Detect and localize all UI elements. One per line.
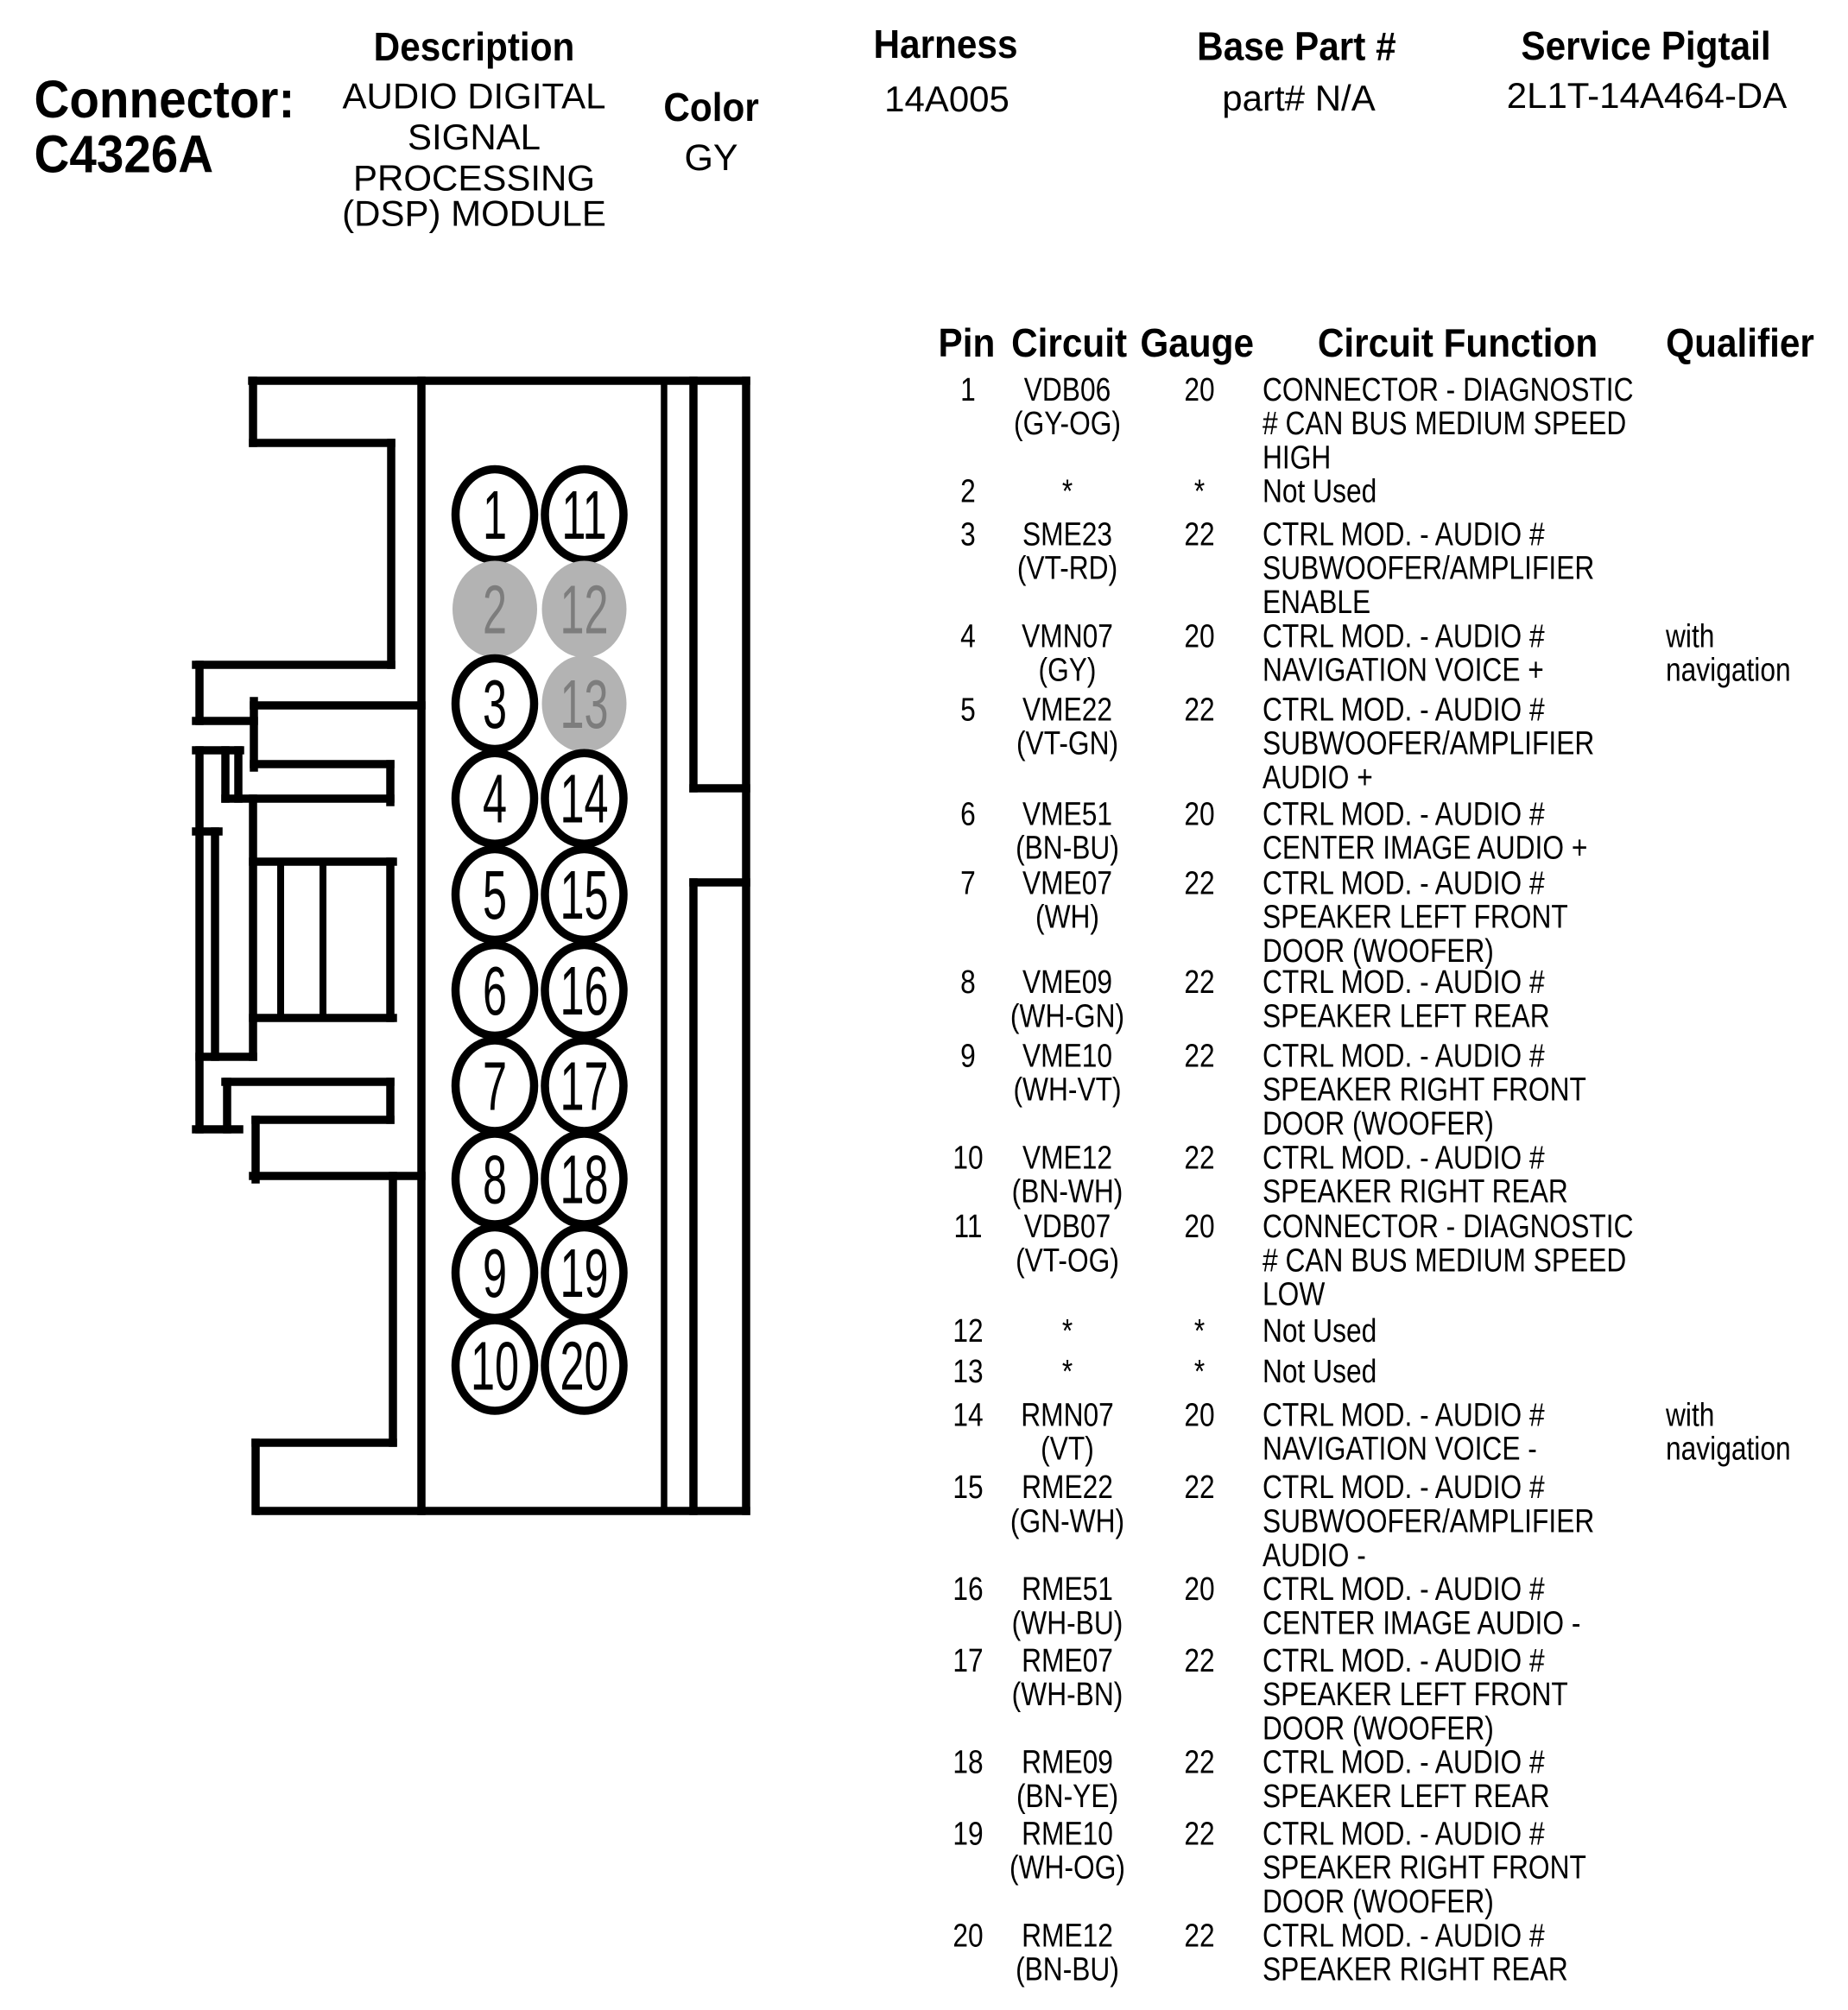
svg-text:22: 22 (1184, 516, 1214, 553)
svg-text:CENTER IMAGE AUDIO -: CENTER IMAGE AUDIO - (1263, 1605, 1580, 1641)
svg-text:8: 8 (960, 964, 976, 1000)
svg-text:22: 22 (1184, 1642, 1214, 1678)
svg-text:22: 22 (1184, 1918, 1214, 1954)
svg-text:22: 22 (1184, 1140, 1214, 1176)
svg-text:with: with (1665, 1397, 1714, 1433)
svg-text:Not Used: Not Used (1263, 1354, 1377, 1390)
svg-text:part# N/A: part# N/A (1222, 78, 1375, 118)
svg-text:RME10: RME10 (1022, 1816, 1113, 1852)
svg-text:PROCESSING: PROCESSING (353, 157, 595, 198)
svg-text:VME09: VME09 (1022, 964, 1112, 1000)
svg-text:9: 9 (483, 1235, 507, 1312)
svg-text:3: 3 (483, 666, 507, 743)
svg-text:CTRL MOD. - AUDIO #: CTRL MOD. - AUDIO # (1263, 1744, 1545, 1780)
svg-text:*: * (1062, 1312, 1073, 1349)
svg-text:(VT-GN): (VT-GN) (1016, 725, 1118, 762)
svg-text:10: 10 (952, 1140, 983, 1176)
svg-text:SPEAKER RIGHT FRONT: SPEAKER RIGHT FRONT (1263, 1849, 1586, 1886)
svg-text:CTRL MOD. - AUDIO #: CTRL MOD. - AUDIO # (1263, 1642, 1545, 1678)
svg-text:19: 19 (952, 1816, 983, 1852)
svg-text:CONNECTOR - DIAGNOSTIC: CONNECTOR - DIAGNOSTIC (1263, 1208, 1633, 1244)
svg-text:CTRL MOD. - AUDIO #: CTRL MOD. - AUDIO # (1263, 1470, 1545, 1506)
svg-text:22: 22 (1184, 865, 1214, 901)
svg-text:CTRL MOD. - AUDIO #: CTRL MOD. - AUDIO # (1263, 1140, 1545, 1176)
svg-text:VME07: VME07 (1022, 865, 1112, 901)
svg-text:SPEAKER LEFT FRONT: SPEAKER LEFT FRONT (1263, 899, 1568, 935)
svg-text:CTRL MOD. - AUDIO #: CTRL MOD. - AUDIO # (1263, 1397, 1545, 1433)
svg-text:2L1T-14A464-DA: 2L1T-14A464-DA (1507, 75, 1788, 116)
svg-text:VMN07: VMN07 (1022, 618, 1113, 654)
svg-text:Circuit: Circuit (1011, 321, 1127, 365)
svg-text:SUBWOOFER/AMPLIFIER: SUBWOOFER/AMPLIFIER (1263, 550, 1594, 586)
svg-text:22: 22 (1184, 1744, 1214, 1780)
svg-text:8: 8 (483, 1141, 507, 1219)
svg-text:20: 20 (1184, 371, 1214, 408)
svg-text:(VT-OG): (VT-OG) (1016, 1242, 1119, 1279)
svg-text:Description: Description (374, 25, 575, 69)
svg-text:CTRL MOD. - AUDIO #: CTRL MOD. - AUDIO # (1263, 618, 1545, 654)
svg-text:CTRL MOD. - AUDIO #: CTRL MOD. - AUDIO # (1263, 516, 1545, 553)
svg-text:22: 22 (1184, 1816, 1214, 1852)
svg-text:16: 16 (952, 1571, 983, 1608)
svg-text:SPEAKER RIGHT FRONT: SPEAKER RIGHT FRONT (1263, 1071, 1586, 1108)
svg-text:Color: Color (663, 86, 758, 130)
svg-text:20: 20 (952, 1918, 983, 1954)
svg-text:SPEAKER LEFT FRONT: SPEAKER LEFT FRONT (1263, 1676, 1568, 1712)
svg-text:NAVIGATION VOICE +: NAVIGATION VOICE + (1263, 652, 1544, 688)
svg-text:11: 11 (561, 477, 606, 554)
svg-text:(GY-OG): (GY-OG) (1014, 405, 1121, 441)
svg-text:17: 17 (952, 1642, 983, 1678)
svg-text:14A005: 14A005 (884, 79, 1009, 119)
svg-text:CTRL MOD. - AUDIO #: CTRL MOD. - AUDIO # (1263, 964, 1545, 1000)
svg-text:AUDIO -: AUDIO - (1263, 1537, 1366, 1573)
svg-text:17: 17 (560, 1048, 608, 1126)
svg-text:Not Used: Not Used (1263, 473, 1377, 509)
svg-text:DOOR (WOOFER): DOOR (WOOFER) (1263, 1883, 1494, 1919)
svg-text:SUBWOOFER/AMPLIFIER: SUBWOOFER/AMPLIFIER (1263, 1503, 1594, 1539)
svg-text:navigation: navigation (1666, 652, 1791, 688)
svg-text:Qualifier: Qualifier (1666, 321, 1814, 365)
svg-text:(VT-RD): (VT-RD) (1017, 550, 1117, 586)
svg-text:VME12: VME12 (1022, 1140, 1112, 1176)
svg-text:CTRL MOD. - AUDIO #: CTRL MOD. - AUDIO # (1263, 1918, 1545, 1954)
svg-text:9: 9 (960, 1038, 976, 1074)
svg-text:# CAN BUS MEDIUM SPEED: # CAN BUS MEDIUM SPEED (1263, 1242, 1626, 1279)
svg-text:VME22: VME22 (1022, 692, 1112, 728)
svg-text:Connector:: Connector: (35, 71, 295, 129)
svg-text:(GN-WH): (GN-WH) (1010, 1503, 1124, 1539)
svg-text:20: 20 (560, 1328, 608, 1406)
svg-text:15: 15 (560, 856, 608, 934)
svg-text:Circuit Function: Circuit Function (1318, 321, 1598, 365)
svg-text:CTRL MOD. - AUDIO #: CTRL MOD. - AUDIO # (1263, 865, 1545, 901)
svg-text:20: 20 (1184, 1571, 1214, 1608)
svg-text:# CAN BUS MEDIUM SPEED: # CAN BUS MEDIUM SPEED (1263, 405, 1626, 441)
svg-text:19: 19 (560, 1235, 608, 1312)
svg-text:*: * (1062, 473, 1073, 509)
svg-text:Gauge: Gauge (1140, 321, 1254, 365)
svg-text:(WH-GN): (WH-GN) (1010, 998, 1124, 1034)
svg-text:with: with (1665, 618, 1714, 654)
svg-text:7: 7 (960, 865, 976, 901)
svg-text:14: 14 (952, 1397, 983, 1433)
svg-text:12: 12 (560, 572, 608, 649)
svg-text:22: 22 (1184, 1038, 1214, 1074)
svg-text:SIGNAL: SIGNAL (408, 117, 541, 157)
svg-text:Pin: Pin (938, 321, 995, 365)
svg-text:*: * (1194, 473, 1206, 509)
svg-text:VME51: VME51 (1022, 796, 1112, 832)
svg-text:SPEAKER RIGHT REAR: SPEAKER RIGHT REAR (1263, 1951, 1568, 1988)
svg-text:(WH): (WH) (1035, 899, 1099, 935)
svg-text:RME09: RME09 (1022, 1744, 1113, 1780)
svg-text:22: 22 (1184, 1470, 1214, 1506)
svg-text:4: 4 (483, 761, 507, 838)
svg-text:20: 20 (1184, 1208, 1214, 1244)
svg-text:20: 20 (1184, 618, 1214, 654)
svg-text:(BN-YE): (BN-YE) (1016, 1778, 1118, 1814)
svg-text:22: 22 (1184, 692, 1214, 728)
svg-text:(BN-BU): (BN-BU) (1016, 1951, 1119, 1988)
svg-text:RMN07: RMN07 (1021, 1397, 1114, 1433)
svg-text:6: 6 (483, 952, 507, 1030)
svg-text:(WH-BU): (WH-BU) (1012, 1605, 1123, 1641)
svg-text:2: 2 (483, 572, 507, 649)
svg-text:VME10: VME10 (1022, 1038, 1112, 1074)
svg-text:CTRL MOD. - AUDIO #: CTRL MOD. - AUDIO # (1263, 1571, 1545, 1608)
svg-text:(WH-VT): (WH-VT) (1013, 1071, 1121, 1108)
svg-text:*: * (1062, 1354, 1073, 1390)
svg-text:Service Pigtail: Service Pigtail (1521, 24, 1770, 68)
svg-text:Base Part #: Base Part # (1197, 25, 1396, 69)
svg-text:NAVIGATION VOICE -: NAVIGATION VOICE - (1263, 1431, 1537, 1467)
svg-text:SPEAKER LEFT REAR: SPEAKER LEFT REAR (1263, 998, 1550, 1034)
svg-text:3: 3 (960, 516, 976, 553)
svg-text:LOW: LOW (1263, 1276, 1325, 1312)
svg-text:RME22: RME22 (1022, 1470, 1113, 1506)
svg-text:(DSP) MODULE: (DSP) MODULE (342, 193, 606, 234)
svg-text:HIGH: HIGH (1263, 439, 1331, 476)
svg-text:ENABLE: ENABLE (1263, 584, 1370, 620)
svg-text:*: * (1194, 1354, 1206, 1390)
svg-text:(WH-BN): (WH-BN) (1012, 1676, 1123, 1712)
svg-text:VDB07: VDB07 (1024, 1208, 1111, 1244)
svg-text:7: 7 (483, 1048, 507, 1126)
svg-text:5: 5 (960, 692, 976, 728)
svg-text:SPEAKER RIGHT REAR: SPEAKER RIGHT REAR (1263, 1173, 1568, 1210)
svg-text:(GY): (GY) (1039, 652, 1097, 688)
svg-text:(VT): (VT) (1041, 1431, 1094, 1467)
svg-text:SME23: SME23 (1022, 516, 1112, 553)
svg-text:CTRL MOD. - AUDIO #: CTRL MOD. - AUDIO # (1263, 1038, 1545, 1074)
svg-text:18: 18 (560, 1141, 608, 1219)
svg-text:10: 10 (471, 1328, 519, 1406)
svg-text:CTRL MOD. - AUDIO #: CTRL MOD. - AUDIO # (1263, 692, 1545, 728)
svg-text:C4326A: C4326A (35, 126, 214, 184)
svg-text:DOOR (WOOFER): DOOR (WOOFER) (1263, 1105, 1494, 1141)
svg-text:(WH-OG): (WH-OG) (1009, 1849, 1125, 1886)
svg-text:CTRL MOD. - AUDIO #: CTRL MOD. - AUDIO # (1263, 1816, 1545, 1852)
svg-text:13: 13 (952, 1354, 983, 1390)
svg-text:15: 15 (952, 1470, 983, 1506)
svg-text:16: 16 (560, 952, 608, 1030)
svg-text:RME07: RME07 (1022, 1642, 1113, 1678)
svg-text:RME12: RME12 (1022, 1918, 1113, 1954)
svg-text:18: 18 (952, 1744, 983, 1780)
svg-text:SUBWOOFER/AMPLIFIER: SUBWOOFER/AMPLIFIER (1263, 725, 1594, 762)
svg-text:6: 6 (960, 796, 976, 832)
svg-text:SPEAKER LEFT REAR: SPEAKER LEFT REAR (1263, 1778, 1550, 1814)
svg-text:RME51: RME51 (1022, 1571, 1113, 1608)
svg-text:(BN-BU): (BN-BU) (1016, 830, 1119, 866)
svg-text:CENTER IMAGE AUDIO +: CENTER IMAGE AUDIO + (1263, 830, 1587, 866)
svg-text:12: 12 (952, 1312, 983, 1349)
svg-text:1: 1 (483, 477, 507, 554)
svg-text:11: 11 (954, 1208, 983, 1244)
svg-text:4: 4 (960, 618, 976, 654)
svg-text:GY: GY (684, 137, 737, 179)
svg-text:5: 5 (483, 856, 507, 934)
svg-text:22: 22 (1184, 964, 1214, 1000)
svg-text:13: 13 (560, 666, 608, 743)
svg-text:DOOR (WOOFER): DOOR (WOOFER) (1263, 1710, 1494, 1747)
svg-text:VDB06: VDB06 (1024, 371, 1111, 408)
svg-text:AUDIO +: AUDIO + (1263, 759, 1373, 795)
svg-text:CTRL MOD. - AUDIO #: CTRL MOD. - AUDIO # (1263, 796, 1545, 832)
svg-text:20: 20 (1184, 796, 1214, 832)
svg-text:navigation: navigation (1666, 1431, 1791, 1467)
svg-text:1: 1 (960, 371, 976, 408)
svg-text:AUDIO DIGITAL: AUDIO DIGITAL (343, 76, 606, 117)
svg-text:20: 20 (1184, 1397, 1214, 1433)
svg-text:(BN-WH): (BN-WH) (1012, 1173, 1123, 1210)
svg-text:Not Used: Not Used (1263, 1312, 1377, 1349)
svg-text:CONNECTOR - DIAGNOSTIC: CONNECTOR - DIAGNOSTIC (1263, 371, 1633, 408)
svg-text:14: 14 (560, 761, 608, 838)
svg-text:Harness: Harness (874, 23, 1018, 67)
svg-text:2: 2 (960, 473, 976, 509)
svg-text:*: * (1194, 1312, 1206, 1349)
